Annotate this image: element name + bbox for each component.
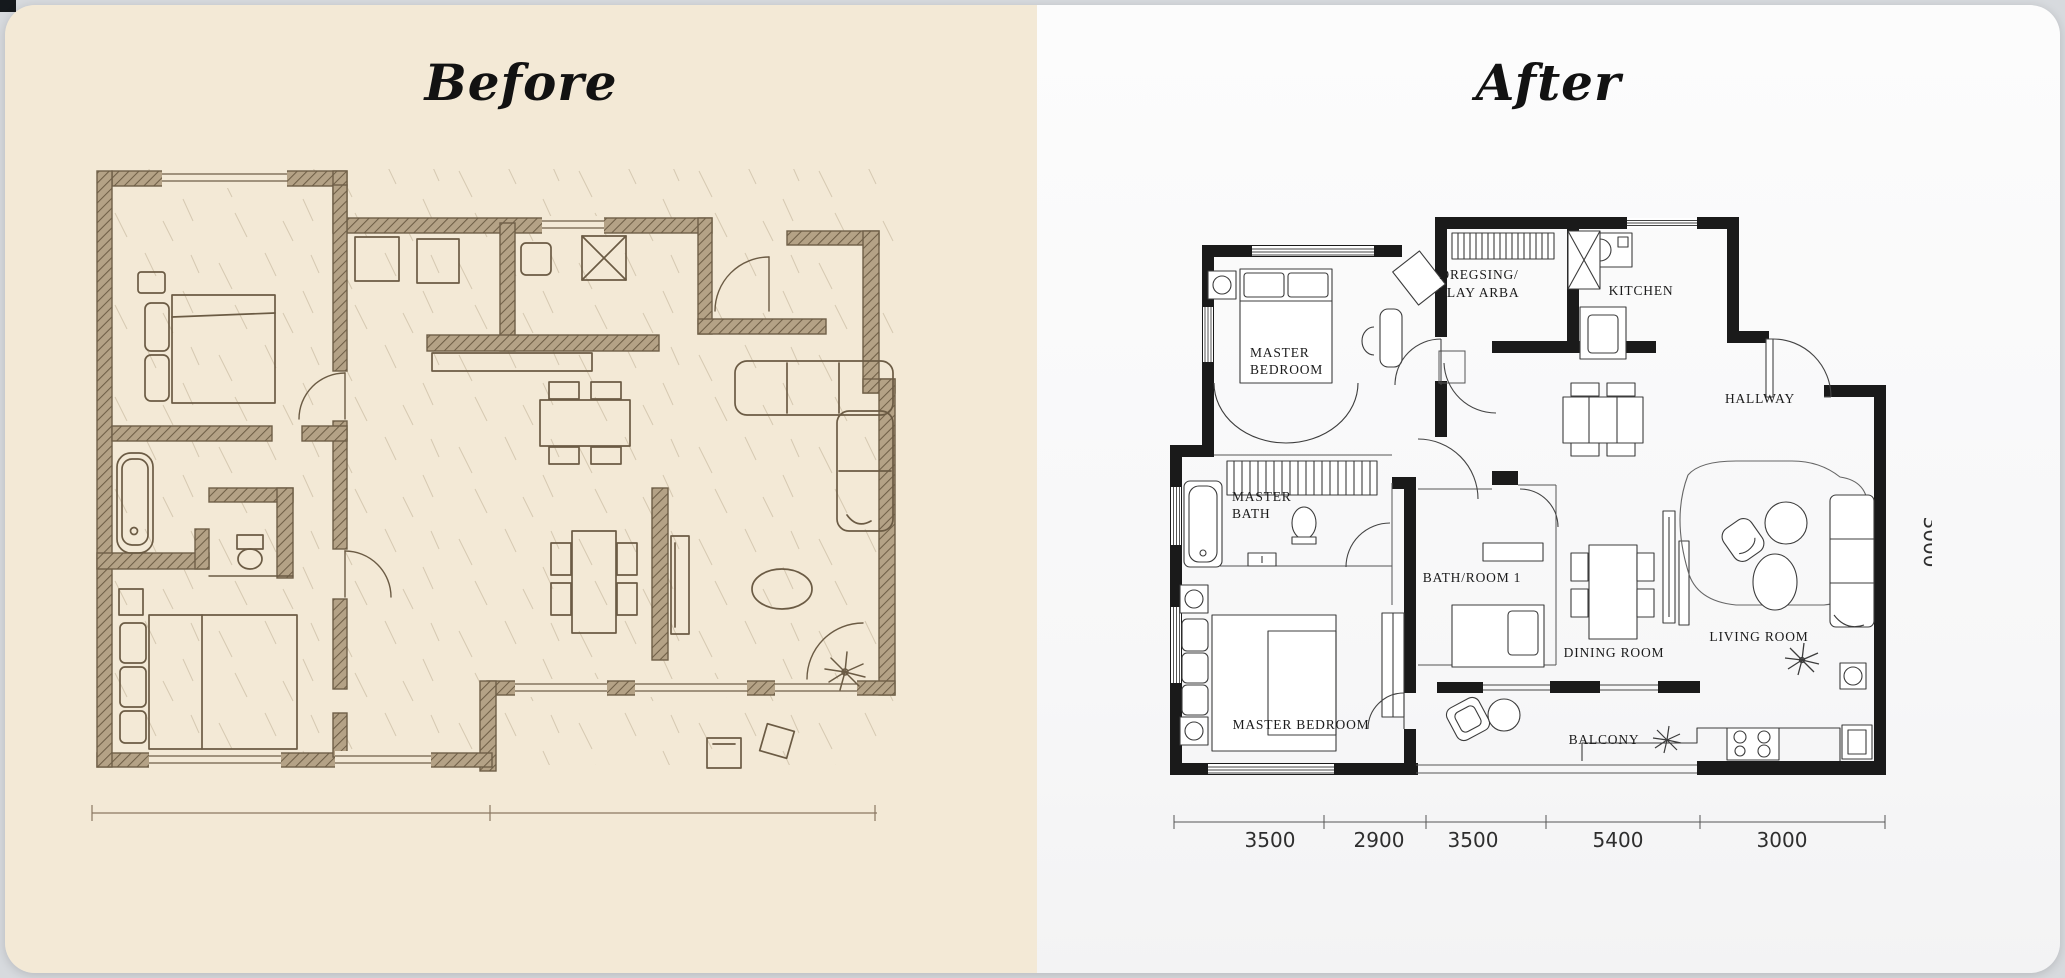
sideboard-icon <box>1663 511 1689 625</box>
room-label-master-bath: MASTER <box>1232 489 1292 504</box>
toilet-icon <box>1292 507 1316 544</box>
stove-icon <box>1727 728 1779 760</box>
after-floorplan: MASTER BEDROOM DREGSING/ PLAY ARBA KITCH… <box>1152 145 1932 865</box>
dimension-label-5: 3000 <box>1757 828 1808 852</box>
dimension-label-1: 3500 <box>1245 828 1296 852</box>
dimension-label-4: 5400 <box>1593 828 1644 852</box>
tall-cabinet-icon <box>1568 231 1600 289</box>
sketch-dimension-line <box>92 805 877 821</box>
nightstand-icon <box>1208 271 1236 299</box>
before-floorplan-sketch <box>87 153 927 863</box>
sofa-icon <box>1830 495 1874 627</box>
room-label-balcony: BALCONY <box>1569 732 1640 747</box>
wardrobe-comb-icon <box>1452 233 1554 259</box>
dimension-label-2: 2900 <box>1354 828 1405 852</box>
oval-table-icon <box>1753 554 1797 610</box>
dimension-label-3: 3500 <box>1448 828 1499 852</box>
room-label-dining-room: DINING ROOM <box>1564 645 1665 660</box>
plant-icon <box>1653 726 1681 753</box>
desk-chair-icon <box>1362 309 1402 367</box>
dining-table-icon <box>1563 383 1643 456</box>
room-label-master-bath-2: BATH <box>1232 506 1270 521</box>
armchair-icon <box>1718 515 1768 566</box>
room-label-master-bedroom-bottom: MASTER BEDROOM <box>1233 717 1370 732</box>
counter-sink-icon <box>1842 725 1872 759</box>
bathtub-icon <box>1184 481 1222 567</box>
room-label-bathroom-1: BATH/ROOM 1 <box>1423 570 1521 585</box>
side-table-icon <box>1840 663 1866 689</box>
wardrobe-icon <box>1382 613 1404 717</box>
after-panel: After <box>1037 5 2060 973</box>
room-label-hallway: HALLWAY <box>1725 391 1795 406</box>
dimension-line <box>1174 815 1885 829</box>
plant-icon <box>1785 643 1819 675</box>
dining-table-icon <box>1571 545 1654 639</box>
room-label-living-room: LIVING ROOM <box>1709 629 1808 644</box>
round-table-icon <box>1765 502 1807 544</box>
room-label-master-bedroom-top: MASTER <box>1250 345 1310 360</box>
oven-icon <box>1580 307 1626 359</box>
balcony-armchair-icon <box>1444 695 1520 744</box>
comparison-image: Before <box>0 0 2065 978</box>
pencil-shading <box>103 169 895 765</box>
after-title: After <box>1037 53 2060 112</box>
bed-icon <box>1452 543 1544 667</box>
room-label-master-bedroom-top-2: BEDROOM <box>1250 362 1323 377</box>
dimension-label-right: 3000 <box>1919 517 1932 568</box>
before-panel: Before <box>5 5 1037 973</box>
room-label-kitchen: KITCHEN <box>1609 283 1674 298</box>
bath-sink-icon <box>1248 553 1276 566</box>
room-label-dressing-2: PLAY ARBA <box>1439 285 1520 300</box>
before-title: Before <box>5 53 1037 112</box>
comparison-card: Before <box>5 5 2060 973</box>
room-label-dressing: DREGSING/ <box>1439 267 1518 282</box>
